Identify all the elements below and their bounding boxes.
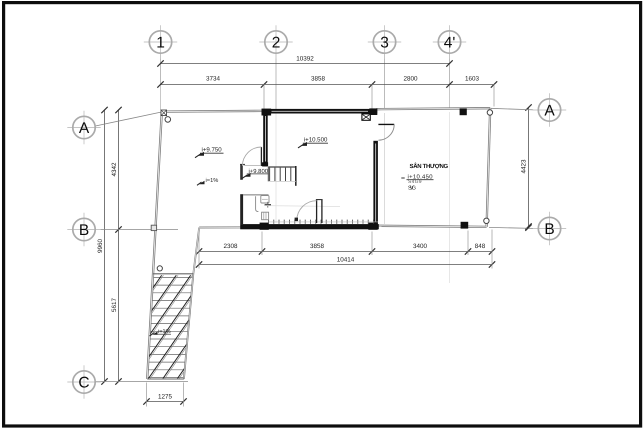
svg-text:3858: 3858: [311, 76, 326, 83]
svg-text:SÂN THƯỢNG: SÂN THƯỢNG: [410, 162, 449, 170]
svg-text:3734: 3734: [206, 76, 221, 83]
svg-text:A: A: [544, 103, 555, 120]
svg-text:S4G9: S4G9: [408, 179, 422, 185]
svg-text:848: 848: [475, 243, 486, 250]
svg-text:2: 2: [272, 35, 281, 52]
svg-text:i=1%: i=1%: [206, 177, 219, 184]
svg-text:i+10.500: i+10.500: [304, 137, 328, 144]
svg-text:3: 3: [380, 35, 389, 52]
svg-text:4342: 4342: [111, 162, 118, 177]
svg-text:C: C: [78, 375, 89, 392]
svg-text:B: B: [544, 221, 554, 238]
svg-text:A: A: [79, 120, 90, 137]
svg-text:10392: 10392: [296, 55, 314, 62]
svg-text:2308: 2308: [223, 243, 238, 250]
svg-text:5617: 5617: [111, 298, 118, 313]
svg-text:i+9.750: i+9.750: [202, 147, 223, 154]
svg-text:1603: 1603: [465, 76, 480, 83]
svg-text:1275: 1275: [158, 393, 173, 400]
svg-text:4423: 4423: [521, 159, 528, 174]
svg-text:SVG: SVG: [408, 185, 416, 191]
svg-text:10414: 10414: [337, 257, 355, 264]
svg-text:2800: 2800: [403, 76, 418, 83]
svg-text:1: 1: [156, 35, 165, 52]
svg-text:9960: 9960: [97, 239, 104, 254]
svg-text:B: B: [79, 222, 89, 239]
svg-text:3400: 3400: [413, 243, 428, 250]
svg-text:3858: 3858: [310, 243, 325, 250]
svg-text:4': 4': [444, 35, 456, 52]
